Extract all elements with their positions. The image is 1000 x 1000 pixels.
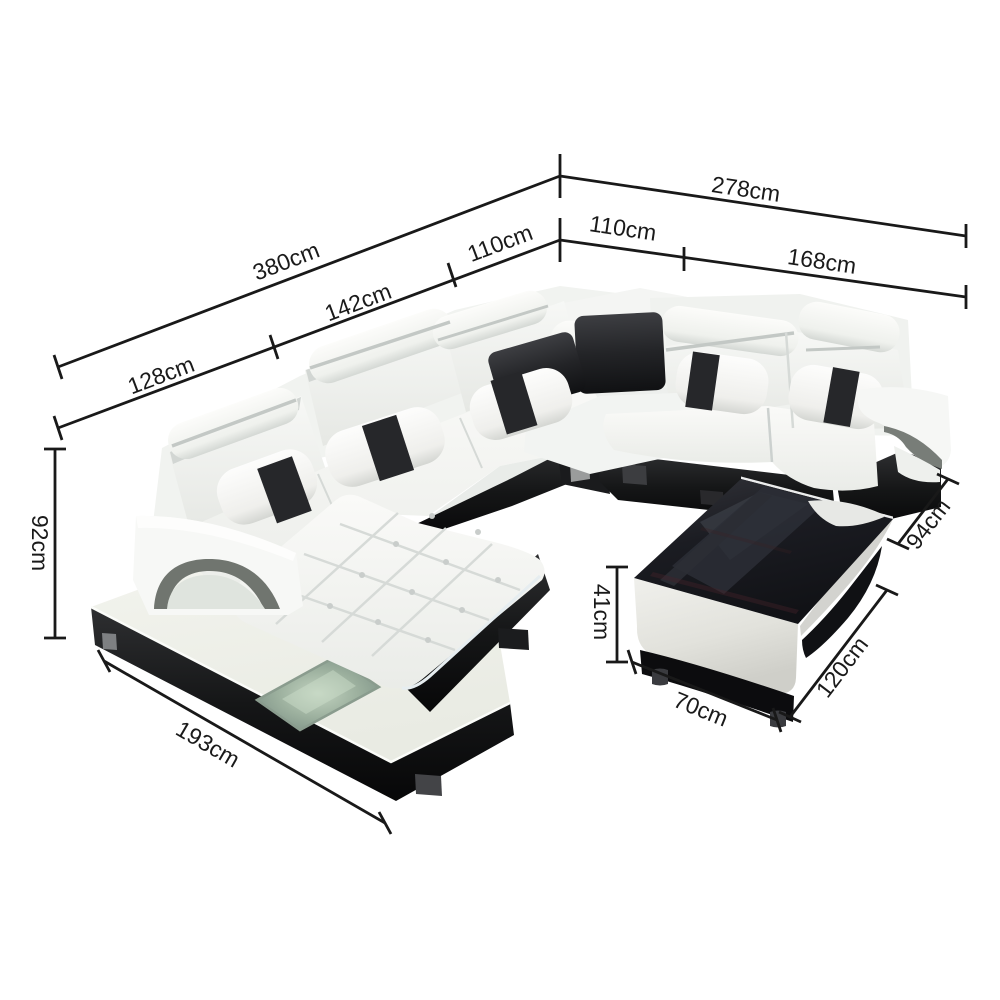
svg-text:92cm: 92cm: [27, 515, 53, 571]
svg-text:41cm: 41cm: [589, 584, 615, 640]
